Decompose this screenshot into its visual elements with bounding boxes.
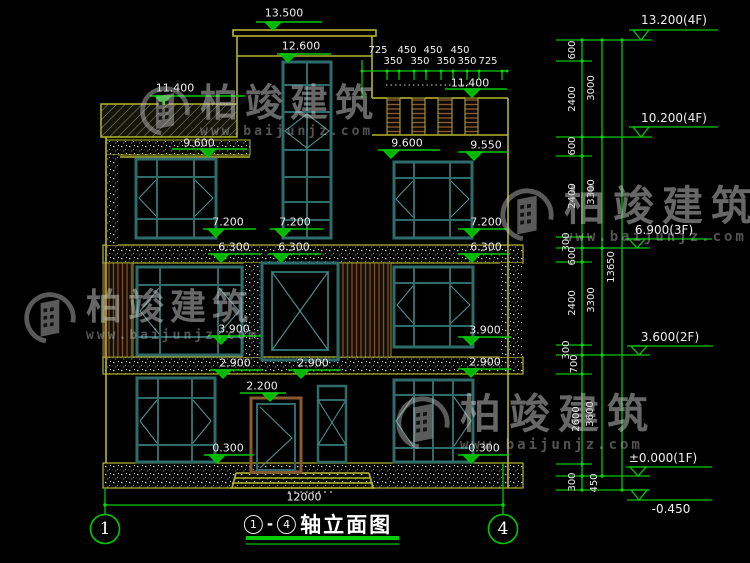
elevation-drawing xyxy=(0,0,750,563)
title-name: 轴立面图 xyxy=(300,509,392,539)
floor-flag-2f: 3.600(2F) xyxy=(641,331,699,343)
window-3f-left xyxy=(137,267,242,355)
dim-3300-a: 3300 xyxy=(587,179,597,204)
dim-3300-b: 3300 xyxy=(587,287,597,312)
window-stair-tower xyxy=(283,62,331,238)
elev-label-9550: 9.550 xyxy=(470,140,502,151)
elev-label-0300-a: 0.300 xyxy=(212,443,244,454)
dim-450-a: 450 xyxy=(397,46,416,56)
axis-bubble-1: 1 xyxy=(100,519,111,539)
dim-2400-c: 2400 xyxy=(568,290,578,315)
floor-flag-3f: 6.900(3F) xyxy=(635,224,693,236)
elev-label-7200-c: 7.200 xyxy=(470,217,502,228)
elev-label-6300-b: 6.300 xyxy=(278,242,310,253)
dim-350-c: 350 xyxy=(436,57,455,67)
elev-label-2900-c: 2.900 xyxy=(469,357,501,368)
drawing-title: 1 - 4 轴立面图 xyxy=(244,509,392,539)
window-4f-left xyxy=(136,159,216,238)
elev-label-0300-b: 0.300 xyxy=(468,443,500,454)
entrance-door xyxy=(251,398,301,472)
dim-725-a: 725 xyxy=(368,46,387,56)
floor-flag-4f: 10.200(4F) xyxy=(641,112,707,124)
dim-700: 700 xyxy=(570,354,580,373)
elev-label-11400-right: 11.400 xyxy=(451,78,490,89)
elev-label-2200: 2.200 xyxy=(246,381,278,392)
floor-flag-4f-roof: 13.200(4F) xyxy=(641,14,707,26)
window-1f-small xyxy=(318,386,346,462)
dim-3600: 3600 xyxy=(586,401,596,426)
dim-600-b: 600 xyxy=(568,136,578,155)
dim-350-d: 350 xyxy=(457,57,476,67)
dim-350-b: 350 xyxy=(410,57,429,67)
window-1f-right xyxy=(394,380,473,462)
dim-total-width: 12000 xyxy=(287,492,322,503)
dim-600-a: 600 xyxy=(568,40,578,59)
dim-2400-b: 2400 xyxy=(568,183,578,208)
elev-label-9600-left: 9.600 xyxy=(183,138,215,149)
dim-13650: 13650 xyxy=(607,251,617,283)
dim-450-c: 450 xyxy=(450,46,469,56)
dim-350-a: 350 xyxy=(383,57,402,67)
cad-elevation-sheet: 13.500 12.600 11.400 11.400 9.600 9.600 … xyxy=(0,0,750,563)
dim-600-c: 600 xyxy=(568,246,578,265)
dim-450-d: 450 xyxy=(590,473,600,492)
elev-label-7200-b: 7.200 xyxy=(279,217,311,228)
floor-flag-ground: -0.450 xyxy=(652,503,691,515)
elev-label-12600: 12.600 xyxy=(282,41,321,52)
elev-label-2900-b: 2.900 xyxy=(297,358,329,369)
dim-2600: 2600 xyxy=(572,406,582,431)
dim-2400-a: 2400 xyxy=(568,86,578,111)
elev-label-3900-b: 3.900 xyxy=(469,325,501,336)
elev-label-6300-a: 6.300 xyxy=(218,242,250,253)
title-dash: - xyxy=(267,515,273,533)
dim-450-b: 450 xyxy=(423,46,442,56)
elev-label-2900-a: 2.900 xyxy=(219,358,251,369)
window-1f-left xyxy=(137,378,215,462)
elev-label-9600-right: 9.600 xyxy=(391,138,423,149)
dim-300-c: 300 xyxy=(568,472,578,491)
dim-3000: 3000 xyxy=(587,75,597,100)
elev-label-11400-left: 11.400 xyxy=(156,83,195,94)
floor-flag-1f: ±0.000(1F) xyxy=(629,452,697,464)
title-axis-from: 1 xyxy=(244,515,263,534)
window-3f-center xyxy=(262,263,338,360)
dim-725-b: 725 xyxy=(478,57,497,67)
window-3f-right xyxy=(394,267,473,347)
title-axis-to: 4 xyxy=(277,515,296,534)
axis-bubble-4: 4 xyxy=(498,519,509,539)
elev-label-3900-a: 3.900 xyxy=(218,324,250,335)
elev-label-13500: 13.500 xyxy=(265,8,304,19)
elev-label-6300-c: 6.300 xyxy=(470,242,502,253)
elev-label-7200-a: 7.200 xyxy=(212,217,244,228)
window-4f-right xyxy=(394,162,472,238)
